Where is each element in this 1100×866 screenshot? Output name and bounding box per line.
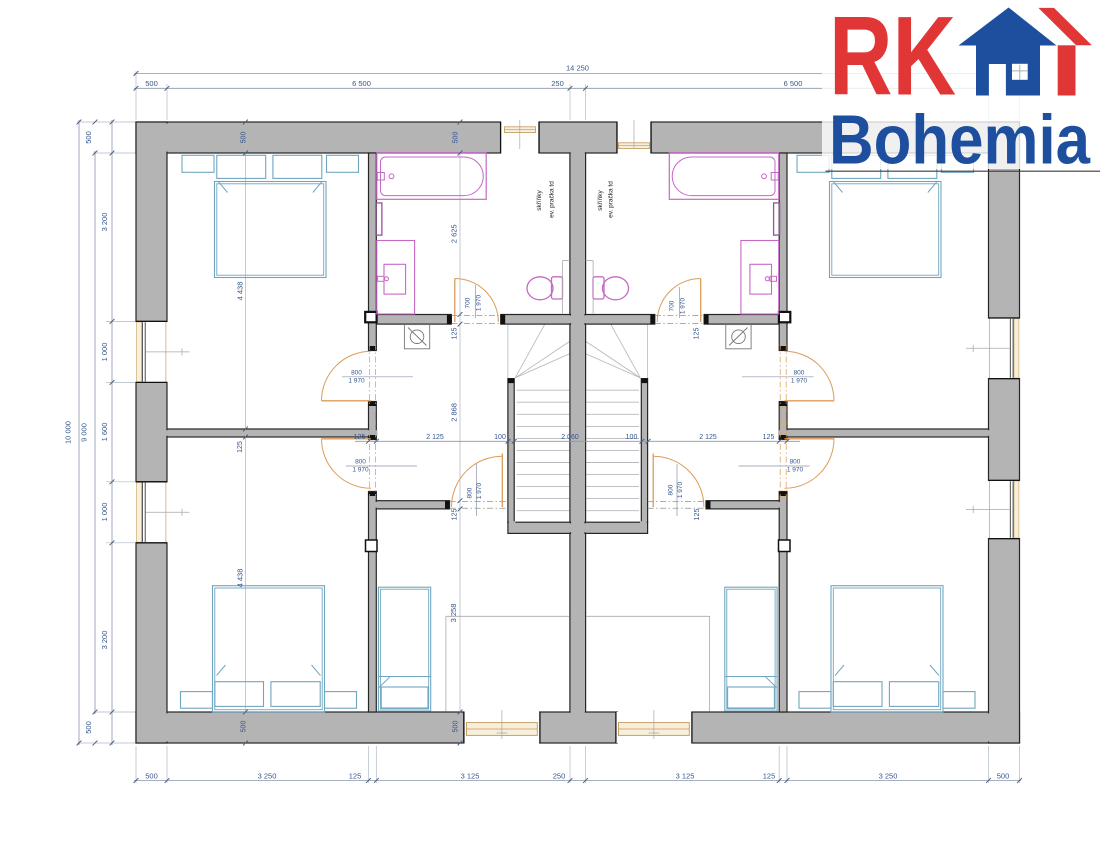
svg-text:500: 500 xyxy=(453,132,460,144)
svg-text:1 970: 1 970 xyxy=(791,378,808,385)
svg-text:1 970: 1 970 xyxy=(476,294,483,311)
svg-text:skříňky: skříňky xyxy=(597,189,604,210)
svg-text:250: 250 xyxy=(551,79,564,88)
svg-text:9 000: 9 000 xyxy=(80,423,89,442)
svg-text:3 250: 3 250 xyxy=(879,771,898,780)
svg-text:250: 250 xyxy=(553,771,566,780)
svg-text:3 125: 3 125 xyxy=(461,771,480,780)
svg-text:125: 125 xyxy=(452,328,459,340)
svg-text:800: 800 xyxy=(794,370,805,377)
svg-text:500: 500 xyxy=(84,721,93,734)
svg-text:1 970: 1 970 xyxy=(680,297,687,314)
svg-text:ev. pračka td: ev. pračka td xyxy=(608,181,615,218)
svg-text:800: 800 xyxy=(351,370,362,377)
svg-text:1 000: 1 000 xyxy=(100,503,109,522)
svg-text:800: 800 xyxy=(355,459,366,466)
svg-text:6 500: 6 500 xyxy=(352,79,371,88)
svg-text:3 200: 3 200 xyxy=(100,631,109,650)
svg-text:125: 125 xyxy=(349,771,362,780)
svg-text:3 200: 3 200 xyxy=(100,213,109,232)
svg-text:Bohemia: Bohemia xyxy=(829,101,1091,179)
svg-text:500: 500 xyxy=(145,771,158,780)
svg-text:2 868: 2 868 xyxy=(450,403,459,422)
svg-text:1 970: 1 970 xyxy=(348,378,365,385)
svg-text:100: 100 xyxy=(626,434,638,441)
svg-text:800: 800 xyxy=(790,459,801,466)
svg-text:4 438: 4 438 xyxy=(236,282,245,301)
svg-text:125: 125 xyxy=(763,434,775,441)
svg-text:800: 800 xyxy=(467,487,474,498)
svg-text:500: 500 xyxy=(84,131,93,144)
svg-text:skříňky: skříňky xyxy=(536,189,543,210)
svg-text:6 500: 6 500 xyxy=(784,79,803,88)
svg-text:2 625: 2 625 xyxy=(450,224,459,243)
svg-text:500: 500 xyxy=(241,721,248,733)
svg-text:1 970: 1 970 xyxy=(677,481,684,498)
svg-text:500: 500 xyxy=(453,721,460,733)
svg-text:1 970: 1 970 xyxy=(787,467,804,474)
svg-text:125: 125 xyxy=(237,441,244,453)
svg-text:125: 125 xyxy=(763,771,776,780)
svg-text:800: 800 xyxy=(667,484,674,495)
svg-text:125: 125 xyxy=(354,434,366,441)
svg-text:3 125: 3 125 xyxy=(676,771,695,780)
svg-text:125: 125 xyxy=(452,509,459,521)
svg-text:125: 125 xyxy=(694,509,701,521)
svg-text:4 438: 4 438 xyxy=(236,569,245,588)
svg-text:2 060: 2 060 xyxy=(561,434,579,441)
svg-text:100: 100 xyxy=(494,434,506,441)
svg-text:ev. pračka td: ev. pračka td xyxy=(549,181,556,218)
svg-text:700: 700 xyxy=(669,300,676,311)
svg-text:3 250: 3 250 xyxy=(258,771,277,780)
svg-text:2 125: 2 125 xyxy=(426,434,444,441)
svg-text:1 600: 1 600 xyxy=(100,423,109,442)
svg-text:2 125: 2 125 xyxy=(699,434,717,441)
svg-text:14 250: 14 250 xyxy=(566,64,589,73)
svg-text:3 258: 3 258 xyxy=(449,604,458,623)
svg-text:1 970: 1 970 xyxy=(476,482,483,499)
svg-text:1 000: 1 000 xyxy=(100,343,109,362)
svg-text:125: 125 xyxy=(694,328,701,340)
svg-text:500: 500 xyxy=(997,771,1010,780)
svg-text:700: 700 xyxy=(465,297,472,308)
svg-text:500: 500 xyxy=(241,132,248,144)
svg-text:1 970: 1 970 xyxy=(352,467,369,474)
svg-text:500: 500 xyxy=(145,79,158,88)
svg-text:10 000: 10 000 xyxy=(64,421,73,444)
